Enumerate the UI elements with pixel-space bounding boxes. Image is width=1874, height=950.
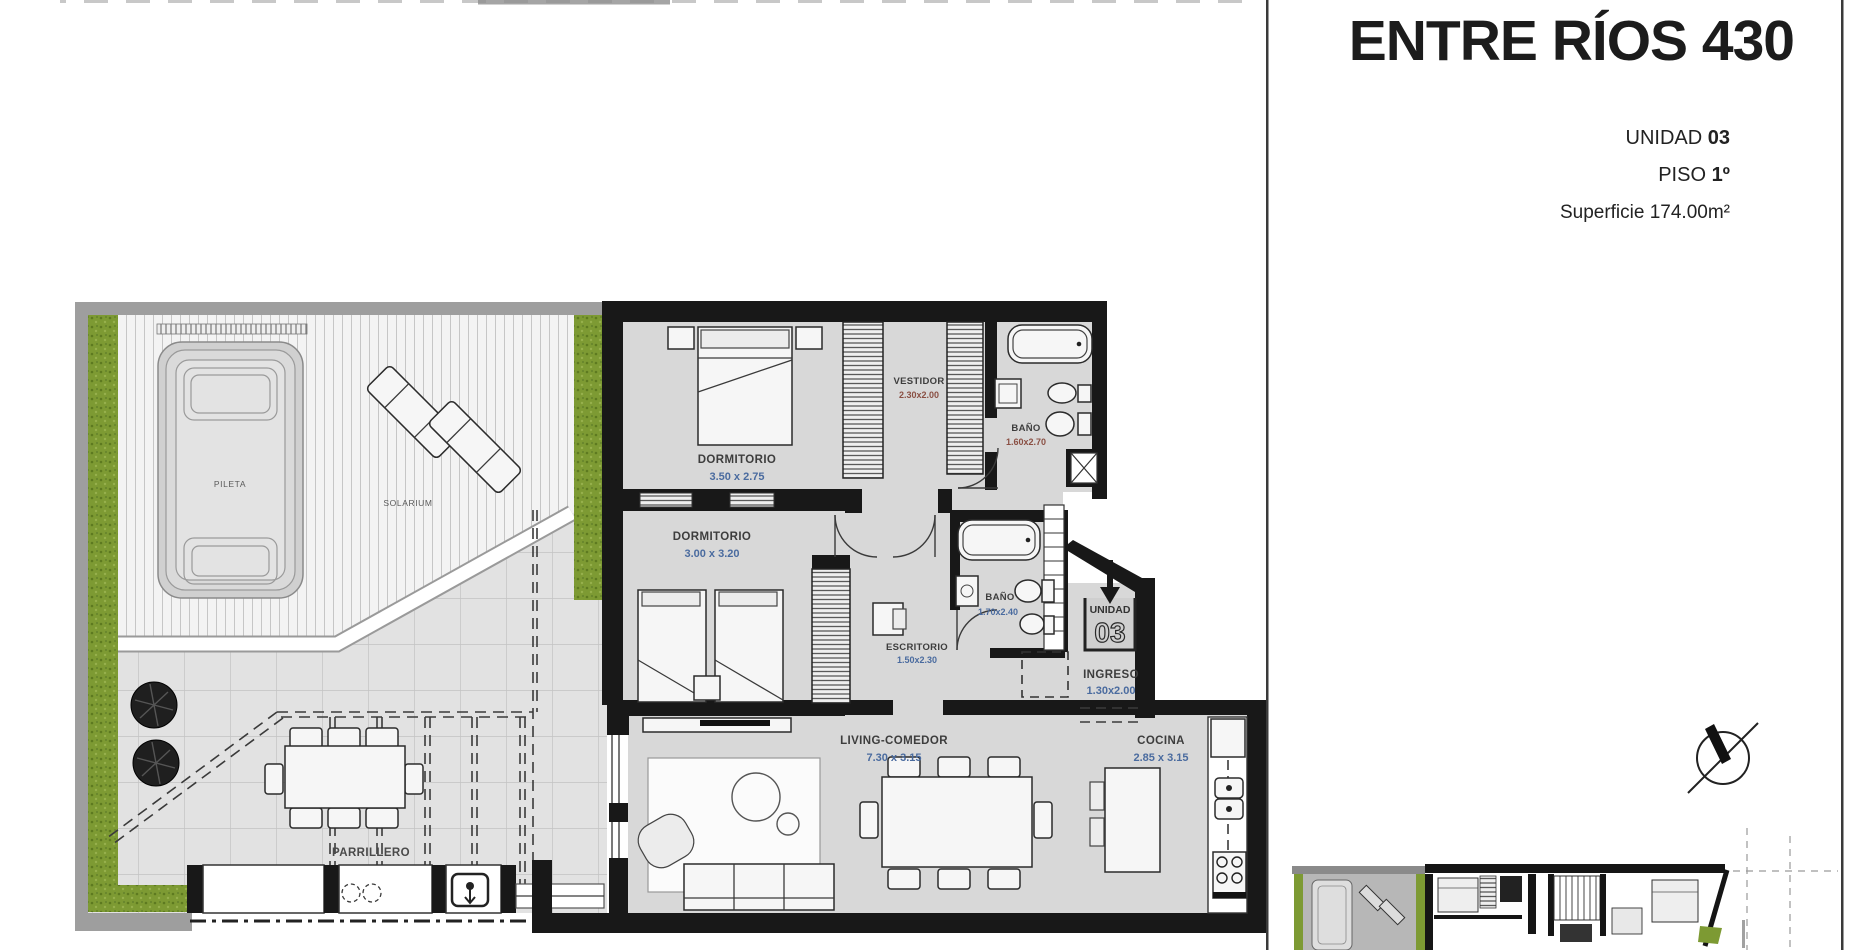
floor-label: PISO xyxy=(1658,164,1706,186)
room-dim-cocina: 2.85 x 3.15 xyxy=(1133,752,1188,764)
room-label-pileta: PILETA xyxy=(214,479,246,489)
scan-artifact-dark xyxy=(478,0,670,5)
wardrobe-vestidor xyxy=(947,322,983,474)
bed-pillows xyxy=(701,330,789,348)
pool: PILETA xyxy=(157,324,307,598)
room-label-vestidor: VESTIDOR xyxy=(894,376,945,387)
room-label-solarium: SOLARIUM xyxy=(383,498,432,508)
room-dim-banio-1: 1.60x2.70 xyxy=(1006,437,1046,447)
terrace-band-top xyxy=(75,302,602,315)
room-label-living: LIVING-COMEDOR xyxy=(840,735,948,747)
wardrobe-2 xyxy=(812,569,850,703)
room-label-parrillero: PARRILLERO xyxy=(332,847,410,859)
shaft-box xyxy=(1066,449,1102,487)
north-compass-icon xyxy=(1688,723,1758,793)
terrace: PILETA SOLARIUM xyxy=(75,302,607,931)
tv xyxy=(700,720,770,726)
stove xyxy=(1213,852,1246,898)
sofa xyxy=(684,864,834,910)
bidet-1 xyxy=(1048,383,1076,403)
stool-1 xyxy=(1090,782,1104,810)
bidet-2 xyxy=(1020,614,1044,634)
kitchen-island xyxy=(1105,768,1160,872)
room-label-banio-1: BAÑO xyxy=(1011,423,1040,434)
room-dim-living: 7.30 x 3.15 xyxy=(866,752,921,764)
room-label-banio-2: BAÑO xyxy=(985,592,1014,603)
nightstand-center xyxy=(694,676,720,700)
nightstand-left xyxy=(668,327,694,349)
plan-sheet: { "title_block": { "title": "ENTRE RÍOS … xyxy=(0,0,1874,950)
surface-line: Superficie 174.00m² xyxy=(1560,202,1730,224)
floor-line: PISO 1º xyxy=(1658,164,1730,187)
floor-number: 1º xyxy=(1712,164,1730,186)
dining-table xyxy=(882,777,1032,867)
room-dim-dormitorio-1: 3.50 x 2.75 xyxy=(709,471,764,483)
tree-2 xyxy=(133,740,179,786)
street-name-mark xyxy=(1742,920,1745,948)
room-label-dormitorio-2: DORMITORIO xyxy=(673,531,752,543)
entry-marker-number: 03 xyxy=(1094,617,1125,648)
key-plan xyxy=(1292,828,1838,950)
room-label-dormitorio-1: DORMITORIO xyxy=(698,454,777,466)
street-grid xyxy=(1733,828,1838,950)
outdoor-table xyxy=(285,746,405,808)
room-label-ingreso: INGRESO xyxy=(1083,669,1139,681)
room-label-cocina: COCINA xyxy=(1137,735,1185,747)
floor-plan-canvas: PILETA SOLARIUM xyxy=(0,0,1874,950)
sheet-right-border xyxy=(1841,0,1844,950)
toilet-2 xyxy=(1015,580,1041,602)
upper-cabinet xyxy=(1211,719,1245,757)
project-title: ENTRE RÍOS 430 xyxy=(1349,8,1794,74)
sheet-divider-line xyxy=(1266,0,1269,950)
pool-edge-ticks xyxy=(157,324,307,334)
room-dim-escritorio: 1.50x2.30 xyxy=(897,655,937,665)
unit-number: 03 xyxy=(1708,127,1730,149)
stool-2 xyxy=(1090,818,1104,846)
sink-2 xyxy=(956,576,978,606)
sliding-door-2 xyxy=(730,493,774,507)
room-dim-dormitorio-2: 3.00 x 3.20 xyxy=(684,548,739,560)
wardrobe-1 xyxy=(843,322,883,478)
tree-1 xyxy=(131,682,177,728)
room-dim-ingreso: 1.30x2.00 xyxy=(1087,685,1136,697)
unit-label: UNIDAD xyxy=(1626,127,1703,149)
sliding-door-1 xyxy=(640,493,692,507)
terrace-band-bottom xyxy=(75,912,192,931)
apartment: UNIDAD 03 xyxy=(532,301,1267,933)
key-plan-stairs xyxy=(1554,876,1600,920)
room-label-escritorio: ESCRITORIO xyxy=(886,642,948,653)
nightstand-right xyxy=(796,327,822,349)
desk xyxy=(873,603,906,635)
room-dim-banio-2: 1.70x2.40 xyxy=(978,607,1018,617)
terrace-band-left xyxy=(75,302,88,931)
key-plan-bed-left xyxy=(1438,878,1478,912)
key-plan-bed-right xyxy=(1652,880,1698,922)
entry-marker-label: UNIDAD xyxy=(1090,604,1131,616)
room-dim-vestidor: 2.30x2.00 xyxy=(899,390,939,400)
living-windows xyxy=(612,735,619,858)
unit-line: UNIDAD 03 xyxy=(1626,127,1730,150)
toilet-1 xyxy=(1046,412,1074,436)
